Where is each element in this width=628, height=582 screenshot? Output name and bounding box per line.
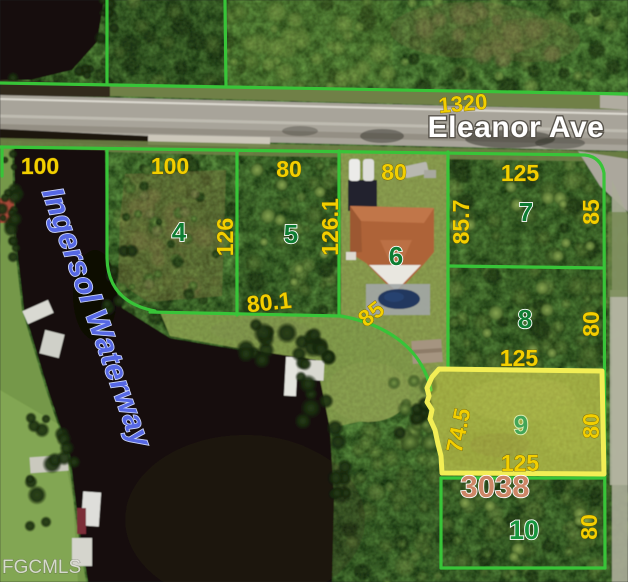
svg-text:8: 8 bbox=[518, 304, 532, 334]
svg-text:80: 80 bbox=[381, 159, 407, 185]
svg-text:126.1: 126.1 bbox=[317, 198, 343, 256]
svg-text:80.1: 80.1 bbox=[246, 287, 293, 318]
svg-text:1320: 1320 bbox=[437, 89, 488, 118]
svg-text:85: 85 bbox=[578, 199, 604, 225]
svg-text:7: 7 bbox=[519, 197, 533, 227]
svg-text:9: 9 bbox=[514, 410, 528, 440]
svg-text:80: 80 bbox=[276, 156, 302, 182]
svg-text:10: 10 bbox=[509, 515, 539, 545]
svg-text:80: 80 bbox=[576, 514, 602, 540]
svg-text:FGCMLS: FGCMLS bbox=[2, 557, 81, 578]
svg-text:85.7: 85.7 bbox=[448, 200, 474, 245]
svg-text:3038: 3038 bbox=[461, 469, 530, 504]
svg-text:4: 4 bbox=[172, 217, 187, 247]
svg-text:6: 6 bbox=[389, 241, 403, 271]
svg-text:80: 80 bbox=[578, 413, 604, 439]
svg-text:100: 100 bbox=[151, 153, 189, 179]
svg-text:80: 80 bbox=[578, 311, 604, 337]
svg-text:100: 100 bbox=[21, 153, 59, 179]
svg-text:125: 125 bbox=[500, 345, 539, 371]
svg-text:5: 5 bbox=[284, 219, 298, 249]
svg-text:126: 126 bbox=[212, 218, 238, 256]
svg-text:125: 125 bbox=[501, 160, 540, 186]
